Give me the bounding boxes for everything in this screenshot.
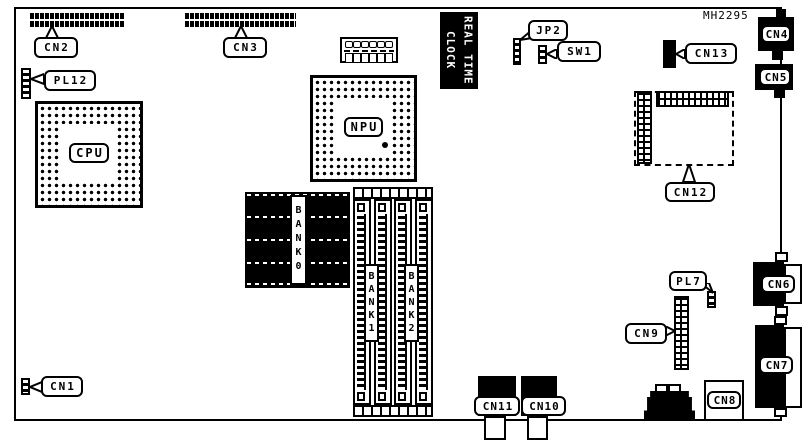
motherboard-layout-diagram: MH2295 CN2 CN3 PL12 CPU NPU REAL TI: [0, 0, 806, 443]
part-number: MH2295: [703, 9, 749, 22]
power-connector-divider: [344, 50, 394, 52]
pl12-header: [21, 68, 31, 99]
power-connector: [340, 37, 398, 63]
cn5-label: CN5: [759, 68, 791, 86]
jp2-label: JP2: [528, 20, 568, 41]
pl12-callout-pointer: [31, 73, 44, 85]
npu-label: NPU: [344, 117, 384, 137]
cn2-label: CN2: [34, 37, 78, 58]
cn7-bracket-tab: [774, 408, 787, 417]
cn8-label: CN8: [707, 391, 741, 409]
cn4-label: CN4: [761, 25, 791, 43]
simm-latch: [378, 392, 386, 401]
keyboard-connector-body: [644, 391, 695, 421]
cn7-label: CN7: [759, 356, 793, 374]
simm-latch: [398, 392, 406, 401]
simm-latch: [357, 203, 365, 212]
cpu-socket-center: CPU: [61, 124, 117, 182]
bank1-label: BANK1: [364, 264, 379, 342]
cn6-bracket-tab: [775, 252, 788, 262]
cn4-tab-bottom: [772, 51, 783, 60]
power-connector-pins: [342, 39, 396, 48]
connector-pin: [361, 41, 369, 48]
simm-pin-row-bottom: [353, 405, 433, 417]
cn7-bracket-tab: [774, 316, 787, 325]
cn13-label: CN13: [685, 43, 737, 64]
bank0-label: BANK0: [290, 195, 307, 285]
pl12-label: PL12: [44, 70, 96, 91]
cn9-label: CN9: [625, 323, 667, 344]
simm-pin-row-top: [353, 187, 433, 199]
cn12-header-vertical: [637, 91, 652, 164]
cn1-header: [21, 378, 30, 395]
cn12-header-horizontal: [656, 91, 729, 107]
bank2-label: BANK2: [404, 264, 419, 342]
cn13-component: [663, 40, 676, 68]
cn1-label: CN1: [41, 376, 83, 397]
keyboard-connector: [644, 384, 695, 421]
cn9-header: [674, 296, 689, 370]
npu-pin1-dot: [382, 142, 388, 148]
connector-hole: [345, 53, 353, 63]
simm-contact-ladder: [357, 216, 364, 388]
cpu-socket: CPU: [35, 101, 143, 208]
simm-latch: [378, 203, 386, 212]
cn3-label: CN3: [223, 37, 267, 58]
cn2-connector: [30, 13, 125, 27]
connector-pin: [353, 41, 361, 48]
sw1-callout-pointer: [547, 49, 557, 59]
cn12-label: CN12: [665, 182, 715, 202]
cn10-port: [527, 416, 548, 440]
simm-contact-ladder: [419, 216, 426, 388]
cn11-port: [484, 416, 506, 440]
connector-hole: [369, 53, 377, 63]
cpu-label: CPU: [69, 143, 109, 163]
cn13-callout-pointer: [676, 49, 685, 59]
simm-contact-ladder: [378, 216, 385, 388]
simm-rail: [385, 214, 387, 390]
sw1-label: SW1: [557, 41, 601, 62]
cn12-callout-pointer: [682, 164, 696, 182]
simm-latch: [419, 203, 427, 212]
cn3-connector: [185, 13, 296, 27]
cn10-label: CN10: [521, 396, 566, 416]
simm-rail: [426, 214, 428, 390]
cn11-label: CN11: [474, 396, 520, 416]
npu-socket-center: NPU: [335, 98, 392, 156]
cn6-bracket-tab: [775, 306, 788, 316]
connector-hole: [385, 53, 393, 63]
connector-pin: [377, 41, 385, 48]
connector-hole: [361, 53, 369, 63]
simm-latch: [419, 392, 427, 401]
jp2-jumper: [513, 38, 521, 65]
cn5-tab-bottom: [774, 90, 785, 98]
pl7-label: PL7: [669, 271, 707, 291]
connector-hole: [353, 53, 361, 63]
connector-pin: [369, 41, 377, 48]
simm-latch: [398, 203, 406, 212]
npu-socket: NPU: [310, 75, 417, 182]
simm-latch: [357, 392, 365, 401]
real-time-clock-chip: REAL TIME CLOCK: [440, 12, 478, 89]
power-connector-holes: [342, 53, 396, 63]
connector-hole: [377, 53, 385, 63]
sw1-switch: [538, 45, 547, 64]
cn6-label: CN6: [761, 275, 795, 293]
connector-pin: [385, 41, 393, 48]
connector-pin: [345, 41, 353, 48]
